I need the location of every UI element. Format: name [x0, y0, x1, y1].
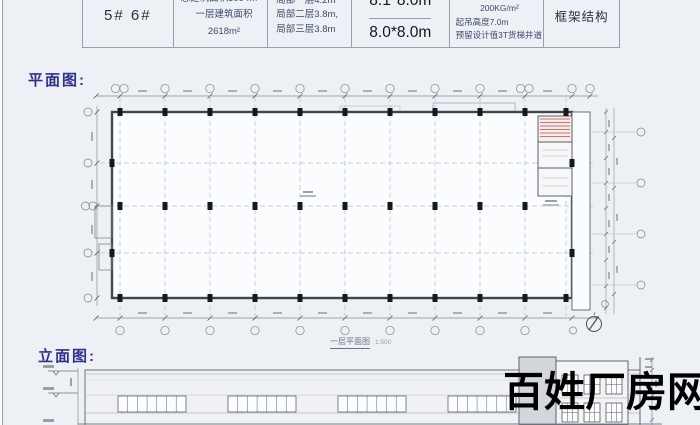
drawings-layer: [0, 0, 700, 425]
bay-size-bottom: 8.0*8.0m: [369, 19, 431, 47]
bottom-dimension: [94, 312, 599, 335]
watermark-text: 百姓厂房网: [503, 372, 700, 413]
unit-number: 5# 6#: [104, 7, 152, 24]
scan-border-line: [2, 0, 3, 425]
floor-plan-drawing: [82, 84, 646, 334]
listing-sheet: 5# 6# 总建筑面积3094m² 一层建筑面积2618m² 局部一层4.2m …: [0, 0, 700, 425]
load-capacity: 二层、三层承载200KG/m²: [456, 0, 544, 16]
storey-height-3: 局部三层3.8m: [276, 23, 335, 37]
elevation-section-label: 立面图:: [38, 345, 96, 366]
spec-table: 5# 6# 总建筑面积3094m² 一层建筑面积2618m² 局部一层4.2m …: [82, 0, 620, 48]
storey-height-2: 局部二层3.8m,: [276, 8, 338, 22]
plan-section-label: 平面图:: [28, 69, 86, 90]
elevation-left-dimension: [43, 365, 78, 425]
first-floor-area: 一层建筑面积2618m²: [181, 7, 268, 40]
bay-size-top: 8.1*8.0m: [369, 0, 431, 19]
hook-height: 起吊高度7.0m: [456, 16, 509, 30]
structure-type: 框架结构: [555, 6, 609, 25]
building-area-cell: 总建筑面积3094m² 一层建筑面积2618m²: [174, 0, 269, 47]
stair-hatch: [538, 116, 572, 142]
north-arrow-icon: [587, 313, 602, 332]
right-dimension: [592, 108, 645, 314]
bay-size-cell: 8.1*8.0m 8.0*8.0m: [352, 0, 450, 47]
plan-caption-scale: 1:500: [375, 339, 391, 346]
plan-caption-title: 一层平面图: [330, 336, 370, 349]
plan-caption: 一层平面图 1:500: [330, 336, 391, 349]
storey-height-1: 局部一层4.2m: [276, 0, 335, 8]
structure-type-cell: 框架结构: [544, 0, 619, 47]
left-dimension: [82, 106, 100, 306]
load-spec-cell: 二层、三层承载200KG/m² 起吊高度7.0m 预留设计值3T货梯井道: [450, 0, 545, 47]
total-area: 总建筑面积3094m²: [181, 0, 261, 7]
freight-lift: 预留设计值3T货梯井道: [456, 29, 542, 43]
storey-height-cell: 局部一层4.2m 局部二层3.8m, 局部三层3.8m: [268, 0, 352, 47]
top-dimension: [94, 84, 599, 98]
unit-number-cell: 5# 6#: [83, 0, 174, 47]
